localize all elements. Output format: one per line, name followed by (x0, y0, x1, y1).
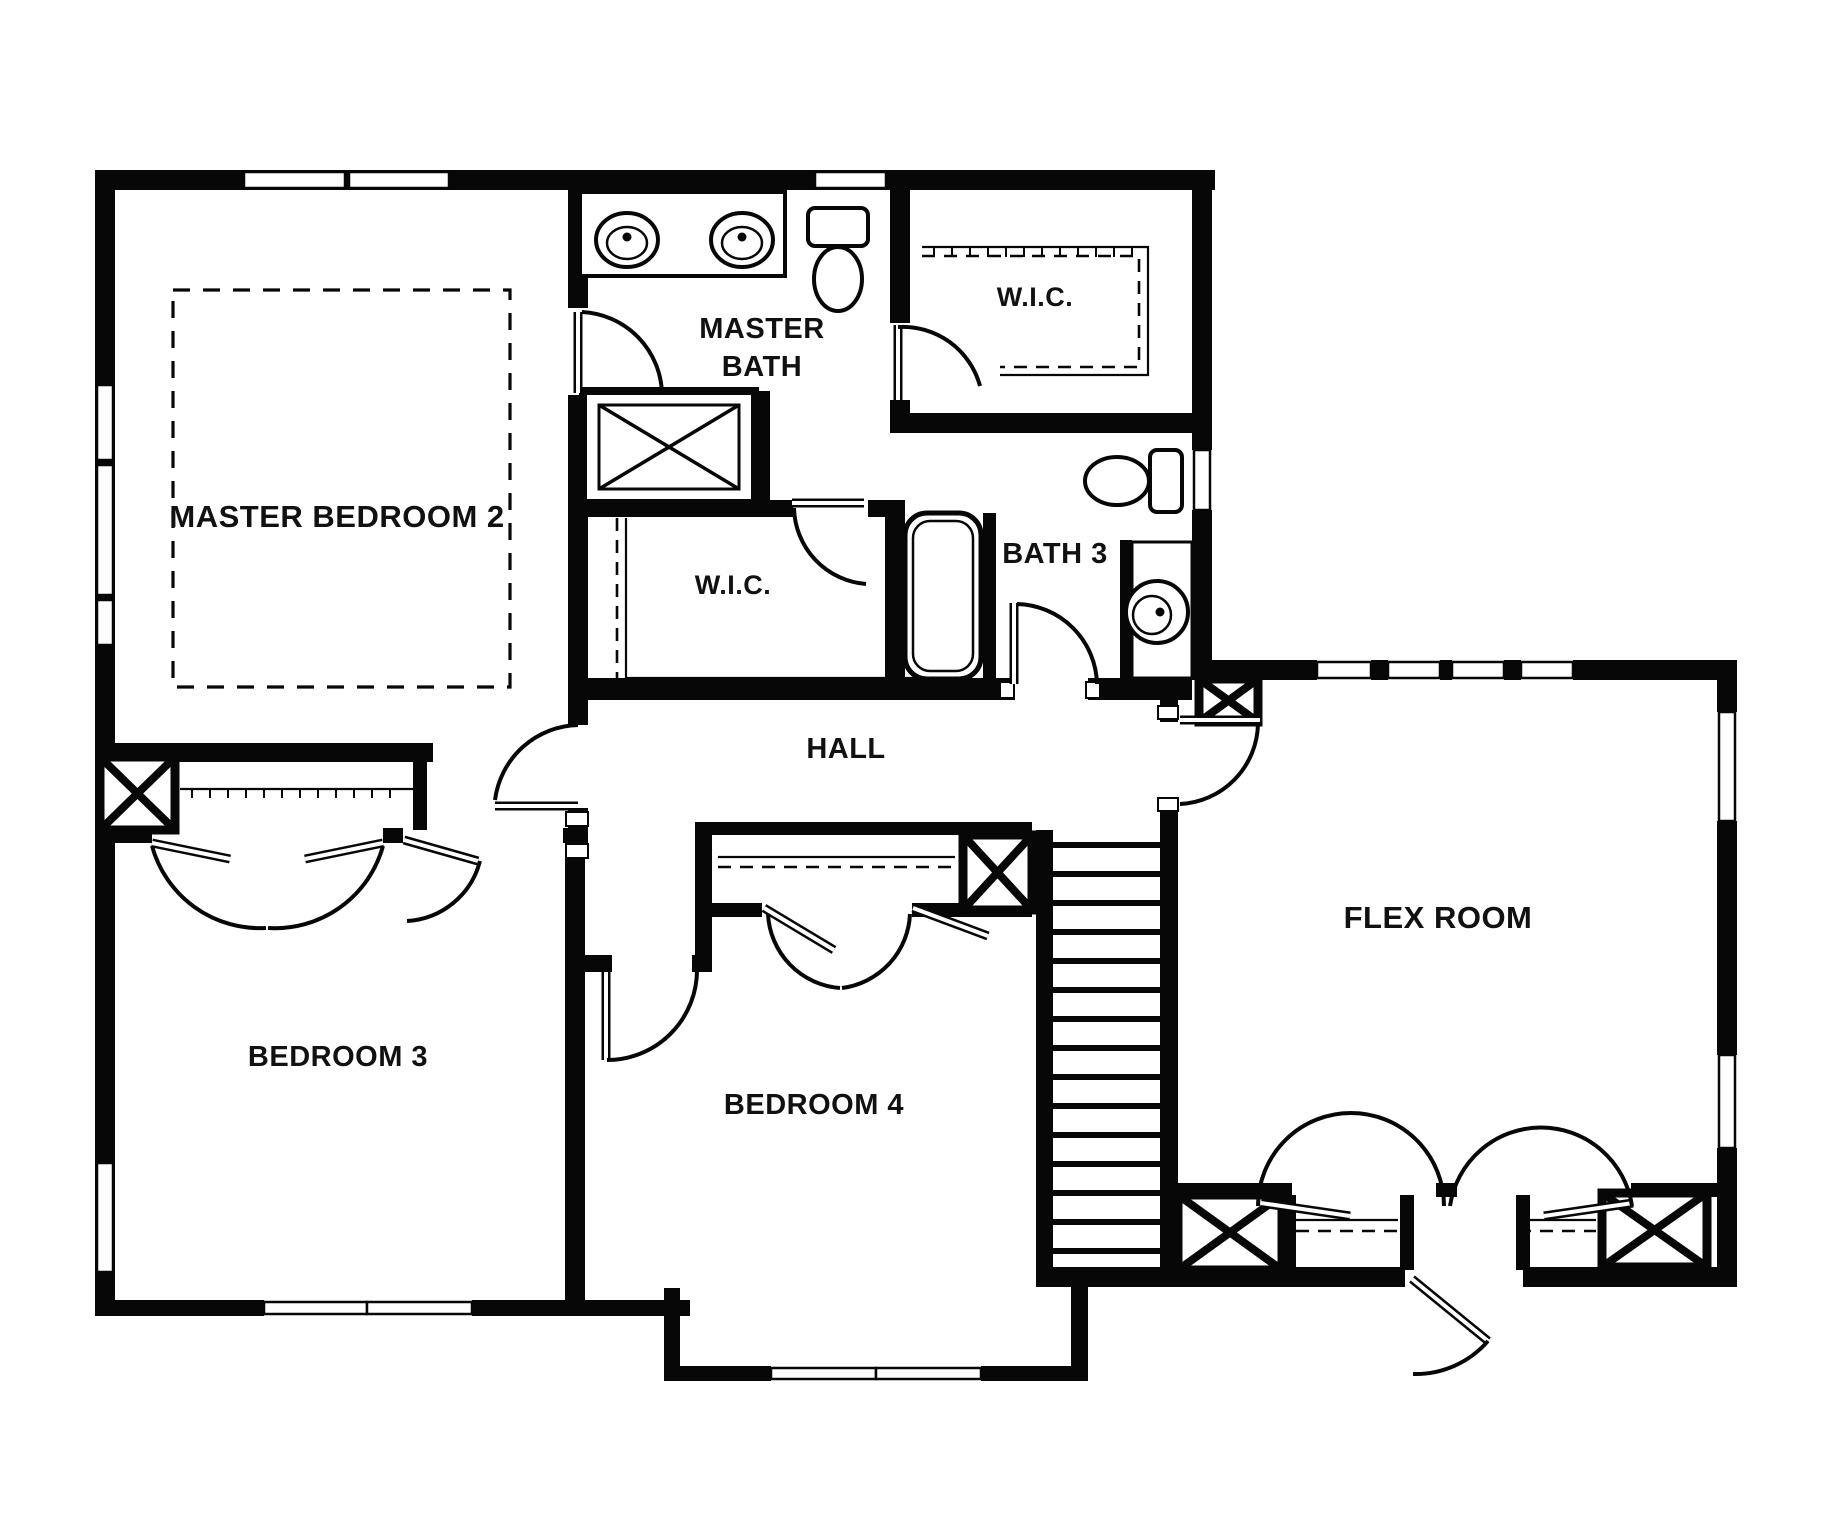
flex-bottom-door (1412, 1279, 1488, 1374)
window (1388, 662, 1440, 678)
window (1719, 712, 1735, 821)
bedroom4-door (606, 969, 697, 1060)
room-label-bath-3: BATH 3 (1002, 538, 1108, 570)
window (97, 600, 113, 645)
bedroom3-door (404, 840, 480, 921)
window (367, 1302, 472, 1314)
window (97, 465, 113, 595)
window (815, 172, 886, 188)
toilet-icon (1085, 450, 1182, 512)
floor-plan-page: MASTER BEDROOM 2 MASTER BATH W.I.C. W.I.… (0, 0, 1821, 1536)
room-label-hall: HALL (806, 733, 885, 765)
window (1317, 662, 1371, 678)
window (97, 385, 113, 460)
floor-plan-svg: MASTER BEDROOM 2 MASTER BATH W.I.C. W.I.… (0, 0, 1821, 1536)
round-sink-icon (1126, 542, 1192, 678)
bath3-door (1014, 603, 1097, 684)
master-bath-door (578, 312, 662, 394)
room-label-master-bedroom-2: MASTER BEDROOM 2 (169, 499, 504, 534)
toilet-icon (808, 208, 868, 311)
windows-group (97, 172, 1735, 1379)
closet-shelves-group (180, 247, 1596, 1231)
wic-upper-door (898, 325, 980, 400)
bedroom3-closet-doors (152, 843, 383, 928)
double-vanity-icon (580, 192, 785, 276)
bed-outline (173, 290, 510, 687)
staircase (1053, 845, 1160, 1251)
bedroom4-closet-doors (764, 908, 988, 988)
room-label-bedroom-4: BEDROOM 4 (724, 1089, 904, 1121)
flex-room-door (1180, 720, 1260, 804)
room-label-master-bath-1: MASTER (699, 313, 824, 345)
window (244, 172, 345, 188)
window (264, 1302, 367, 1314)
window (1194, 450, 1210, 510)
window (771, 1368, 876, 1379)
chase-boxes-group (100, 679, 1707, 1270)
window (1719, 1055, 1735, 1148)
window (97, 1163, 113, 1272)
walls-group (95, 170, 1737, 1381)
room-label-flex-room: FLEX ROOM (1344, 900, 1533, 935)
shower-icon (583, 391, 755, 503)
bathtub-icon (905, 513, 981, 679)
labels-group: MASTER BEDROOM 2 MASTER BATH W.I.C. W.I.… (169, 282, 1532, 1121)
flex-closet-doors (1258, 1113, 1633, 1216)
window (349, 172, 449, 188)
room-label-master-bath-2: BATH (722, 351, 802, 383)
shelf-ticks (192, 789, 390, 798)
window (876, 1368, 981, 1379)
master-bedroom-door (495, 725, 578, 806)
window (1521, 662, 1573, 678)
x-box (963, 835, 1032, 910)
room-label-bedroom-3: BEDROOM 3 (248, 1041, 428, 1073)
window (1452, 662, 1504, 678)
room-label-wic-upper: W.I.C. (997, 282, 1074, 312)
room-label-wic-master: W.I.C. (695, 570, 772, 600)
x-box (100, 757, 175, 830)
wic-master-door (792, 503, 866, 584)
